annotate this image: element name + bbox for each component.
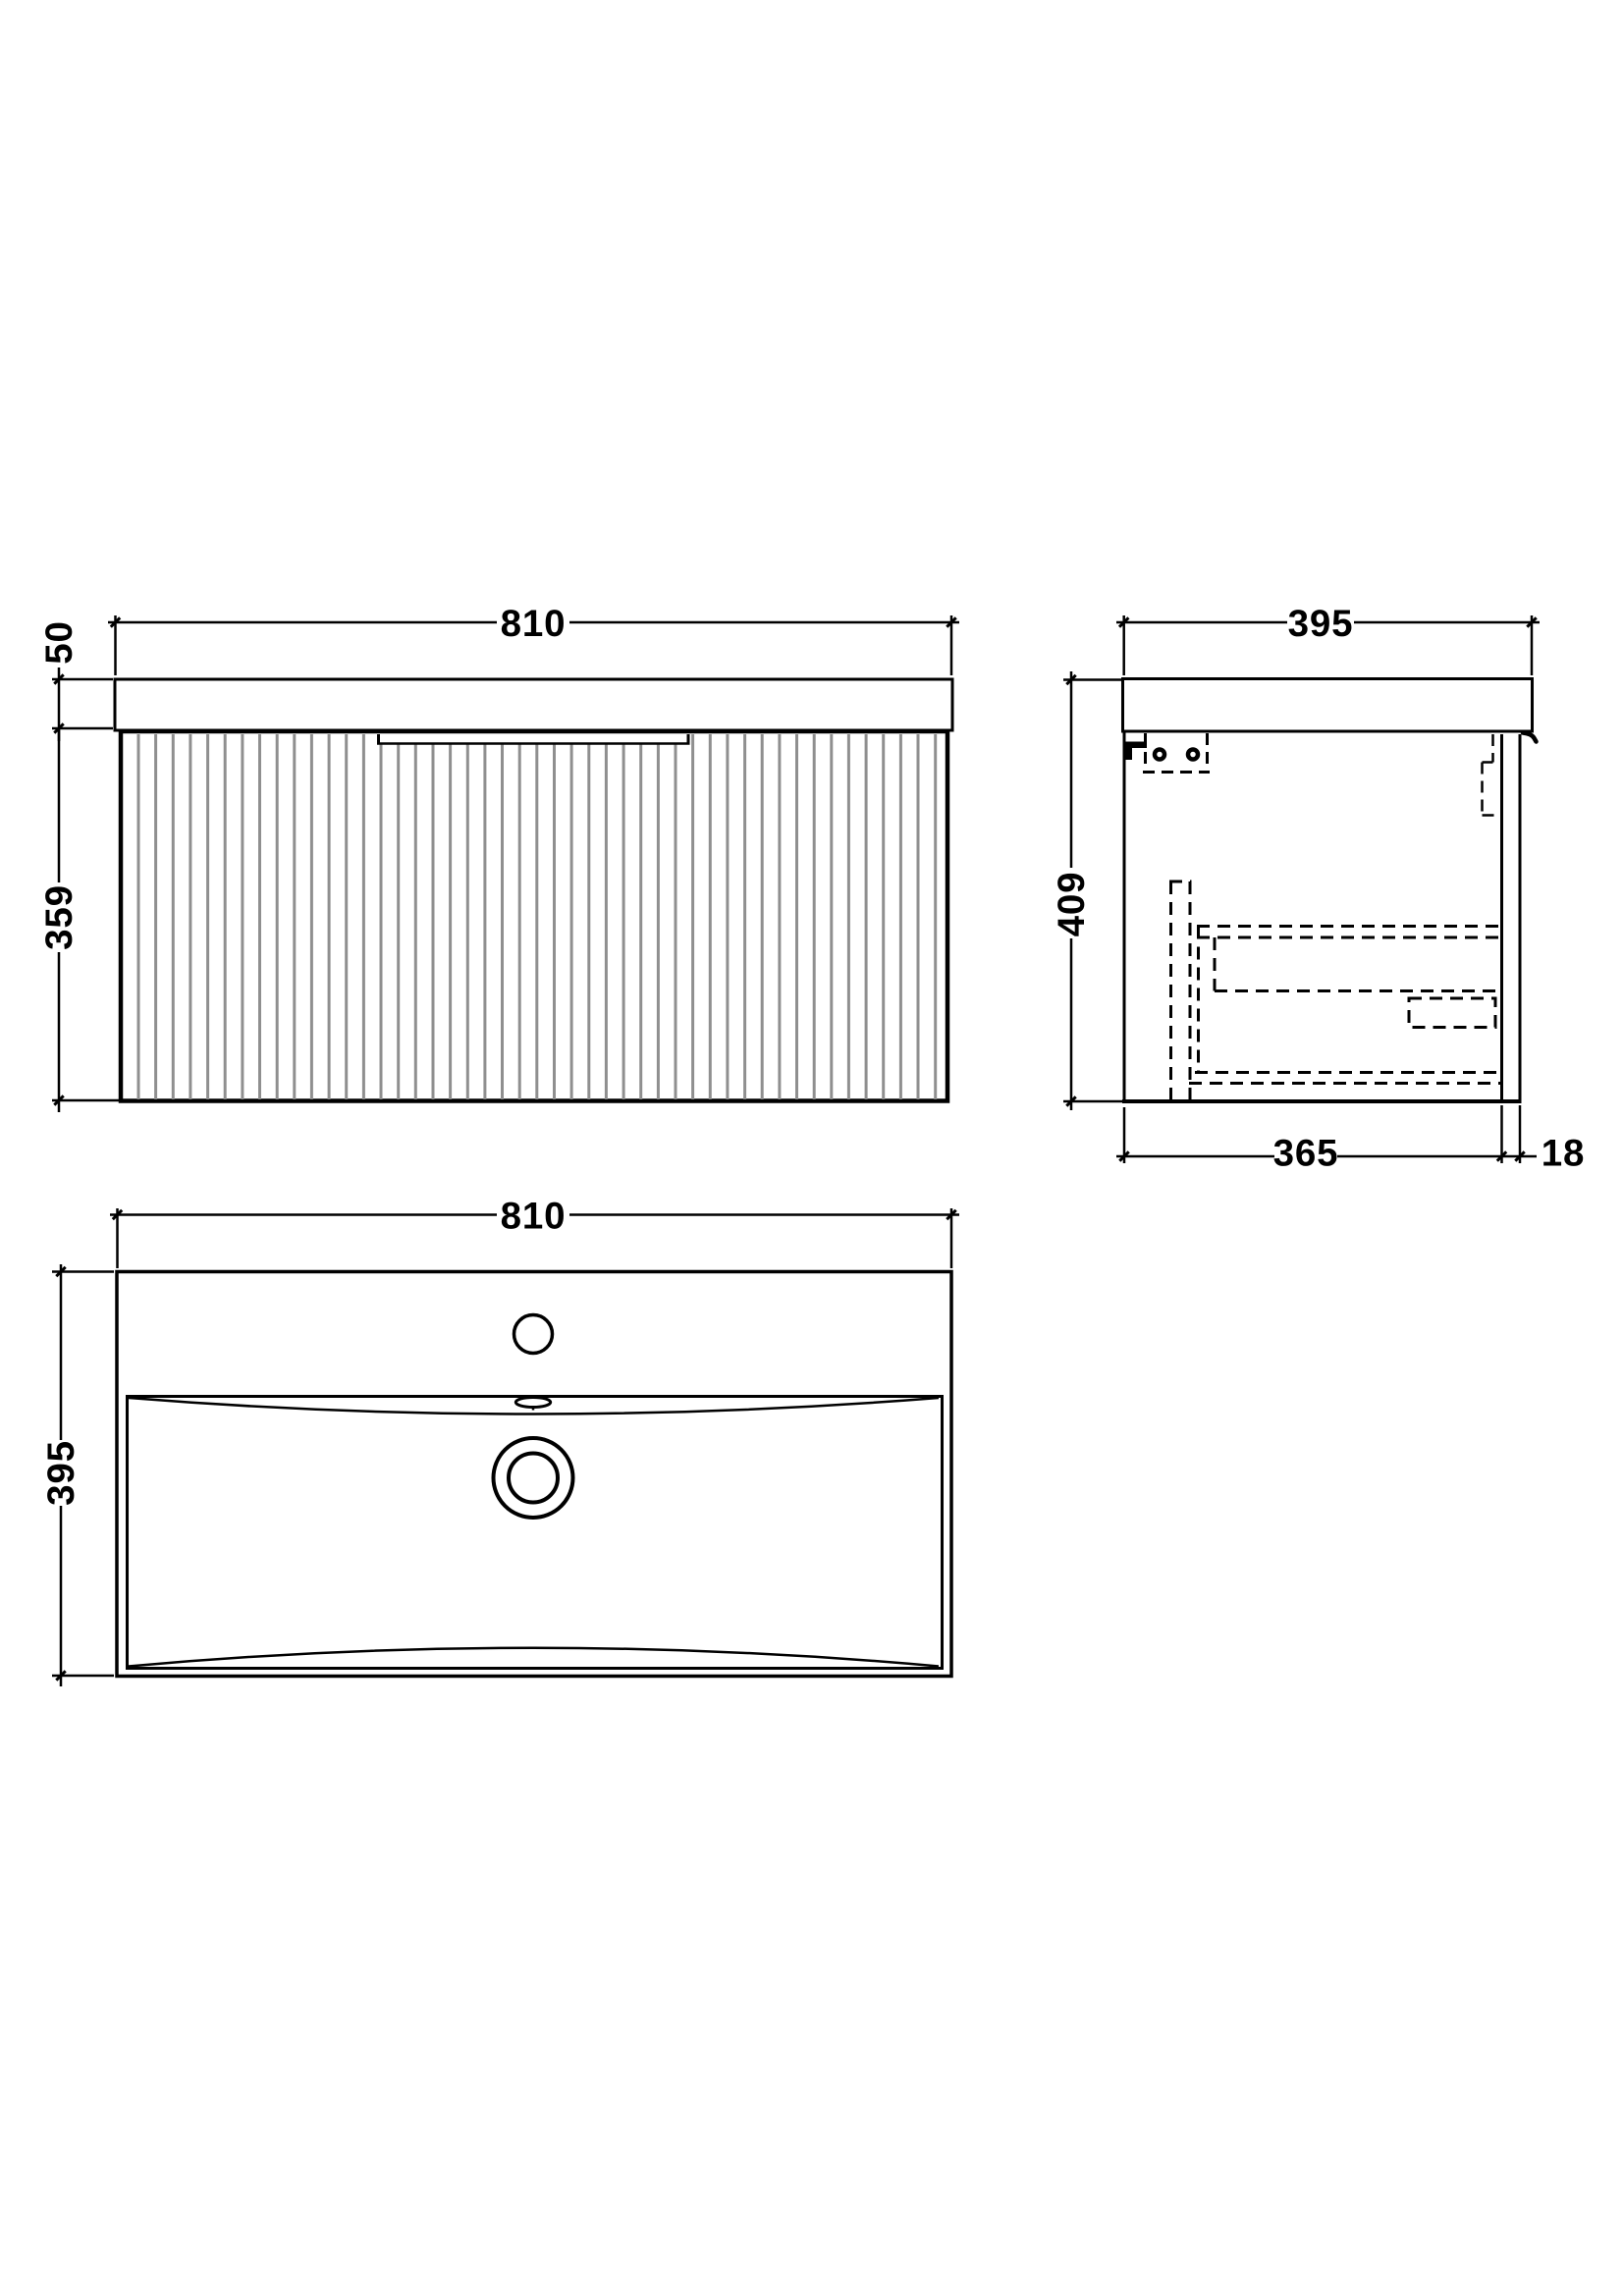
svg-text:395: 395 bbox=[40, 1440, 82, 1506]
svg-text:395: 395 bbox=[1288, 603, 1354, 645]
svg-text:50: 50 bbox=[38, 620, 81, 664]
svg-text:810: 810 bbox=[501, 1196, 567, 1238]
svg-text:409: 409 bbox=[1051, 872, 1093, 937]
svg-text:365: 365 bbox=[1273, 1133, 1339, 1175]
svg-text:18: 18 bbox=[1542, 1133, 1585, 1175]
svg-text:359: 359 bbox=[38, 884, 81, 950]
svg-text:810: 810 bbox=[501, 603, 567, 645]
